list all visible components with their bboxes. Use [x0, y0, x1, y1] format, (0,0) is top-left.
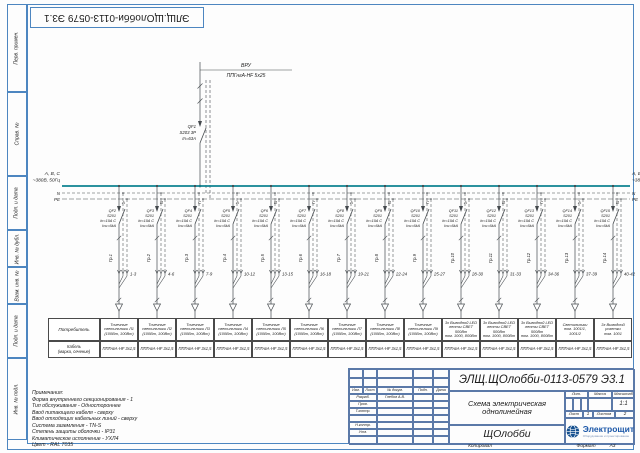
group-label: Гр.5 [260, 253, 265, 262]
table-cell-line: ППГнгА-HF 3х1,5 [217, 347, 250, 352]
cable-terminal [268, 304, 275, 311]
feeder-breaker-label: In=10A C [404, 219, 420, 223]
wire-numbers: 16-18 [320, 272, 332, 277]
feeder-breaker-label: QF2 [109, 209, 117, 213]
table-cell-line: (100Вт, 100Вт) [408, 332, 437, 336]
cable-cell-9: ППГнгА-HF 3х1,5 [404, 341, 442, 358]
table-cell-line: (100Вт, 100Вт) [256, 332, 285, 336]
table-cell-line: (100Вт, 100Вт) [332, 332, 361, 336]
cable-terminal [572, 304, 579, 311]
feeder-breaker-label: In=10A C [442, 219, 458, 223]
consumer-cell-11: 3х Выводной LEDленты СВЕТ 500Втпом. 1000… [480, 318, 518, 341]
group-label: Гр.4 [222, 253, 227, 262]
table-cell-line: пом. 1000, 800Вт [445, 334, 477, 338]
feeder-breaker-label: Icu=6kA [330, 224, 344, 228]
stamp-header-3: Подп. [413, 387, 433, 394]
feeder-breaker-label: Icu=6kA [216, 224, 230, 228]
stamp-lit-cell-1 [565, 398, 573, 411]
feeder-breaker-label: In=10A C [214, 219, 230, 223]
breaker-arrow [198, 121, 202, 127]
schematic-label: PE [54, 197, 61, 202]
feeder-arrow [421, 206, 425, 212]
table-cell-line: (100Вт, 100Вт) [104, 332, 133, 336]
feeder-breaker-label: In=10A C [252, 219, 268, 223]
margin-cell-label: Подп. и дата [14, 315, 20, 346]
schematic-label: ВРУ [241, 63, 252, 69]
feeder-arrow [383, 206, 387, 212]
feeder-breaker-label: QF15 [601, 209, 611, 213]
cable-cell-13: ППГнгА-HF 3х1,5 [556, 341, 594, 358]
feeder-breaker-label: QF13 [525, 209, 535, 213]
cable-terminal [420, 304, 427, 311]
table-cell-line: ППГнгА-HF 3х1,5 [369, 347, 402, 352]
consumer-cell-2: Точечныесветильники Л2(100Вт, 100Вт) [138, 318, 176, 341]
stamp-row-label-3 [349, 415, 377, 422]
consumer-cell-8: Точечныесветильники Л8(100Вт, 100Вт) [366, 318, 404, 341]
consumer-cell-6: Точечныесветильники Л6(100Вт, 100Вт) [290, 318, 328, 341]
table-cell-line: ППГнгА-HF 3х1,5 [521, 347, 554, 352]
feeder-arrow [269, 206, 273, 212]
wire-numbers: 22-24 [395, 272, 408, 277]
feeder-breaker-label: In=10A C [100, 219, 116, 223]
phase-letter: C [312, 200, 316, 205]
schematic-label: PE [632, 197, 639, 202]
feeder-breaker-label: QF10 [411, 209, 421, 213]
group-label: Гр.12 [526, 252, 531, 263]
feeder-breaker-label: S201 [107, 214, 116, 218]
schematic-label: ~380В, 50Гц [33, 178, 61, 184]
row1-header: Потребитель [48, 318, 100, 341]
consumer-cell-12: 3х Выводной LEDленты СВЕТ 500Втпом. 1000… [518, 318, 556, 341]
feeder-arrow [193, 206, 197, 212]
stamp-row-sign-5 [413, 429, 433, 436]
group-label: Гр.14 [602, 252, 607, 263]
consumer-cell-14: 3х Выводнойрозеткипом. 1001 [594, 318, 632, 341]
stamp-row-name-3 [377, 415, 413, 422]
schematic-shape [423, 209, 429, 224]
cable-cell-7: ППГнгА-HF 3х1,5 [328, 341, 366, 358]
cable-cell-10: ППГнгА-HF 3х1,5 [442, 341, 480, 358]
stamp-row-date-5 [433, 429, 449, 436]
table-cell-line: (100Вт, 100Вт) [180, 332, 209, 336]
consumer-cell-7: Точечныесветильники Л7(100Вт, 100Вт) [328, 318, 366, 341]
feeder-breaker-label: QF4 [185, 209, 192, 213]
schematic-label: A, B, C [44, 171, 61, 177]
feeder-breaker-label: QF3 [147, 209, 155, 213]
cable-terminal [496, 304, 503, 311]
stamp-change-cell [433, 378, 449, 387]
company-logo: Электрощит Оборудование и проектирование [565, 418, 635, 445]
wire-numbers: 1-3 [130, 272, 137, 277]
schematic-label: N [632, 191, 636, 196]
stamp-lit-cell-3 [581, 398, 588, 411]
table-cell-line: 1001/2 [569, 332, 581, 336]
margin-cell-label: Инв. № подл. [14, 383, 20, 414]
stamp-sheets-value: 2 [615, 411, 635, 418]
feeder-breaker-label: Icu=6kA [406, 224, 420, 228]
feeder-breaker-label: S201 [335, 214, 344, 218]
cable-terminal [116, 304, 123, 311]
stamp-lit-cell-2 [573, 398, 581, 411]
stamp-row-name-4 [377, 422, 413, 429]
feeder-breaker-label: QF7 [299, 209, 307, 213]
margin-cell-6: Инв. № подл. [7, 358, 27, 440]
feeder-breaker-label: Icu=6kA [254, 224, 268, 228]
stamp-row-label-0: Разраб. [349, 394, 377, 401]
cable-cell-2: ППГнгА-HF 3х1,5 [138, 341, 176, 358]
note-line: Ввод отходящих кабельных линий - сверху [32, 416, 137, 423]
table-cell-line: ППГнгА-HF 3х1,5 [179, 347, 212, 352]
stamp-row-date-4 [433, 422, 449, 429]
stamp-header-1: Лист [363, 387, 377, 394]
feeder-breaker-label: In=10A C [290, 219, 306, 223]
group-label: Гр.10 [450, 252, 455, 263]
consumers-table: ПотребительКабель(марка, сечение)Точечны… [48, 318, 632, 358]
stamp-row-date-0 [433, 394, 449, 401]
wire-numbers: 25-27 [433, 272, 446, 277]
stamp-row-label-2: Т.контр. [349, 408, 377, 415]
cable-terminal [458, 304, 465, 311]
table-cell-line: ППГнгА-HF 3х1,5 [407, 347, 440, 352]
stamp-sheet-label: Лист [565, 411, 583, 418]
cable-terminal [192, 304, 199, 311]
feeder-breaker-label: QF8 [337, 209, 345, 213]
wire-numbers: 10-12 [244, 272, 256, 277]
cable-cell-6: ППГнгА-HF 3х1,5 [290, 341, 328, 358]
cable-terminal [534, 304, 541, 311]
feeder-breaker-label: S201 [411, 214, 420, 218]
group-label: Гр.1 [108, 254, 113, 262]
consumer-cell-4: Точечныесветильники Л4(100Вт, 100Вт) [214, 318, 252, 341]
cable-terminal [610, 304, 617, 311]
group-label: Гр.2 [146, 253, 151, 262]
feeder-breaker-label: QF5 [223, 209, 231, 213]
phase-letter: C [198, 200, 202, 205]
stamp-row-name-2 [377, 408, 413, 415]
cable-cell-11: ППГнгА-HF 3х1,5 [480, 341, 518, 358]
group-label: Гр.8 [374, 253, 379, 262]
stamp-doc-number: ЭЛЩ.ЩОлобби-0113-0579 Э3.1 [449, 369, 635, 391]
title-block: ЭЛЩ.ЩОлобби-0113-0579 Э3.1 Схема электри… [348, 368, 634, 444]
consumer-cell-13: Светильникипом. 1001/1,1001/2 [556, 318, 594, 341]
feeder-arrow [535, 206, 539, 212]
schematic-shape [157, 209, 163, 224]
cable-cell-4: ППГнгА-HF 3х1,5 [214, 341, 252, 358]
consumer-cell-3: Точечныесветильники Л3(100Вт, 100Вт) [176, 318, 214, 341]
stamp-sheet-value: 1 [583, 411, 593, 418]
phase-letter: B [616, 200, 619, 205]
phase-letter: B [274, 200, 277, 205]
group-label: Гр.3 [184, 253, 189, 262]
feeder-breaker-label: S201 [221, 214, 230, 218]
feeder-breaker-label: S201 [259, 214, 268, 218]
schematic-shape [200, 128, 206, 143]
cable-cell-3: ППГнгА-HF 3х1,5 [176, 341, 214, 358]
schematic-shape [233, 209, 239, 224]
feeder-arrow [573, 206, 577, 212]
feeder-breaker-label: In=10A C [480, 219, 496, 223]
stamp-change-cell [433, 369, 449, 378]
feeder-arrow [231, 206, 235, 212]
feeder-breaker-label: S201 [487, 214, 496, 218]
table-cell-line: ППГнгА-HF 3х1,5 [103, 347, 136, 352]
cable-cell-5: ППГнгА-HF 3х1,5 [252, 341, 290, 358]
stamp-change-cell [413, 369, 433, 378]
stamp-row-label-5: Утв. [349, 429, 377, 436]
table-cell-line: ППГнгА-HF 3х1,5 [483, 347, 516, 352]
phase-letter: C [426, 200, 430, 205]
feeder-breaker-label: S201 [449, 214, 458, 218]
schematic-shape [195, 209, 201, 224]
table-cell-line: ППГнгА-HF 3х1,5 [293, 347, 326, 352]
schematic-label: N [57, 191, 61, 196]
stamp-scale-label: Масштаб [612, 391, 635, 398]
stamp-header-2: № докум. [377, 387, 413, 394]
incoming-breaker-label: QF1 [188, 124, 197, 129]
wire-numbers: 31-33 [510, 272, 522, 277]
stamp-row-date-3 [433, 415, 449, 422]
schematic-shape [461, 209, 467, 224]
group-label: Гр.11 [488, 253, 493, 263]
schematic-shape [271, 209, 277, 224]
stamp-row-sign-1 [413, 401, 433, 408]
stamp-change-cell [363, 369, 377, 378]
cable-cell-12: ППГнгА-HF 3х1,5 [518, 341, 556, 358]
table-cell-line: (100Вт, 100Вт) [142, 332, 171, 336]
stamp-change-cell [413, 378, 433, 387]
feeder-breaker-label: Icu=6kA [140, 224, 154, 228]
stamp-change-cell [349, 369, 363, 378]
group-label: Гр.7 [336, 253, 341, 262]
feeder-breaker-label: S201 [601, 214, 610, 218]
stamp-header-4: Дата [433, 387, 449, 394]
feeder-breaker-label: S201 [373, 214, 382, 218]
table-cell-line: ППГнгА-HF 3х1,5 [445, 347, 478, 352]
stamp-scale-value: 1:1 [612, 398, 635, 411]
feeder-arrow [459, 206, 463, 212]
incoming-breaker-label: S203 3P [180, 130, 197, 135]
feeder-breaker-label: QF12 [487, 209, 497, 213]
logo-text: Электрощит [583, 425, 634, 434]
schematic-label: A, B, C [631, 171, 640, 177]
wire-numbers: 40-42 [624, 272, 636, 277]
consumer-cell-10: 3х Выводной LEDленты СВЕТ 500Втпом. 1000… [442, 318, 480, 341]
feeder-arrow [345, 206, 349, 212]
stamp-row-date-1 [433, 401, 449, 408]
copied-label: Копировал [400, 444, 560, 449]
stamp-row-name-0: Глебов А.В. [377, 394, 413, 401]
stamp-header-0: Изм. [349, 387, 363, 394]
table-cell-line: (100Вт, 100Вт) [294, 332, 323, 336]
phase-letter: B [502, 200, 505, 205]
feeder-breaker-label: Icu=6kA [368, 224, 382, 228]
stamp-change-cell [377, 369, 413, 378]
feeder-breaker-label: In=10A C [366, 219, 382, 223]
schematic-shape [347, 209, 353, 224]
table-cell-line: ППГнгА-HF 3х1,5 [331, 347, 364, 352]
feeder-breaker-label: S201 [297, 214, 306, 218]
table-cell-line: (100Вт, 100Вт) [370, 332, 399, 336]
stamp-change-cell [349, 378, 363, 387]
group-label: Гр.13 [564, 252, 569, 263]
notes-lines: Форма внутреннего секционирования - 1Тип… [32, 397, 137, 449]
feeder-breaker-label: In=10A C [594, 219, 610, 223]
stamp-row-name-1 [377, 401, 413, 408]
feeder-breaker-label: S201 [183, 214, 192, 218]
schematic-shape [499, 209, 505, 224]
stamp-change-cell [377, 378, 413, 387]
stamp-lit-label: Лит. [565, 391, 588, 398]
schematic-shape [613, 209, 619, 224]
feeder-arrow [611, 206, 615, 212]
wire-numbers: 7-9 [206, 272, 213, 277]
feeder-breaker-label: Icu=6kA [482, 224, 496, 228]
schematic-shape [385, 209, 391, 224]
table-cell-line: пом. 1000, 800Вт [521, 334, 553, 338]
feeder-arrow [307, 206, 311, 212]
stamp-bottom-1 [349, 436, 377, 445]
feeder-breaker-label: In=10A C [138, 219, 154, 223]
globe-icon [566, 424, 580, 439]
feeder-breaker-label: Icu=6kA [596, 224, 610, 228]
phase-letter: B [388, 200, 391, 205]
schematic-shape [537, 209, 543, 224]
feeder-breaker-label: QF14 [563, 209, 573, 213]
stamp-row-sign-0 [413, 394, 433, 401]
table-cell-line: Потребитель [58, 327, 89, 332]
stamp-object-name: ЩОлобби [449, 425, 565, 445]
schematic-shape [309, 209, 315, 224]
feeder-breaker-label: In=10A C [176, 219, 192, 223]
consumer-cell-1: Точечныесветильники Л1(100Вт, 100Вт) [100, 318, 138, 341]
stamp-row-label-4: Н.контр. [349, 422, 377, 429]
feeder-breaker-label: Icu=6kA [178, 224, 192, 228]
row2-header: Кабель(марка, сечение) [48, 341, 100, 358]
stamp-mass-label: Масса [588, 391, 612, 398]
stamp-sheets-label: Листов [593, 411, 615, 418]
cable-cell-14: ППГнгА-HF 3х1,5 [594, 341, 632, 358]
group-label: Гр.9 [412, 253, 417, 262]
cable-cell-8: ППГнгА-HF 3х1,5 [366, 341, 404, 358]
stamp-row-name-5 [377, 429, 413, 436]
feeder-breaker-label: S201 [145, 214, 154, 218]
note-line: Цвет - RAL 7035 [32, 442, 137, 449]
feeder-breaker-label: Icu=6kA [292, 224, 306, 228]
feeder-breaker-label: Icu=6kA [444, 224, 458, 228]
feeder-breaker-label: Icu=6kA [102, 224, 116, 228]
feeder-breaker-label: Icu=6kA [558, 224, 572, 228]
cable-terminal [306, 304, 313, 311]
stamp-row-sign-4 [413, 422, 433, 429]
feeder-breaker-label: QF9 [375, 209, 383, 213]
phase-letter: B [160, 200, 163, 205]
feeder-arrow [497, 206, 501, 212]
logo-tagline: Оборудование и проектирование [583, 434, 629, 438]
feeder-breaker-label: QF6 [261, 209, 269, 213]
table-cell-line: ППГнгА-HF 3х1,5 [141, 347, 174, 352]
wire-numbers: 4-6 [168, 272, 175, 277]
stamp-row-sign-3 [413, 415, 433, 422]
incoming-breaker-label: In=63A [182, 136, 196, 141]
wire-numbers: 13-15 [282, 272, 294, 277]
feeder-breaker-label: Icu=6kA [520, 224, 534, 228]
table-cell-line: (марка, сечение) [58, 350, 91, 355]
wire-numbers: 34-36 [548, 272, 560, 277]
feeder-breaker-label: QF11 [449, 209, 458, 213]
phase-letter: C [540, 200, 544, 205]
format-label: Формат А3 [556, 444, 636, 449]
consumer-cell-5: Точечныесветильники Л5(100Вт, 100Вт) [252, 318, 290, 341]
stamp-title: Схема электрическая однолинейная [449, 391, 565, 425]
stamp-row-date-2 [433, 408, 449, 415]
schematic-shape [575, 209, 581, 224]
schematic-label: ППГнгА-HF 5х25 [227, 73, 266, 79]
notes-block: Примечания: Форма внутреннего секциониро… [32, 390, 137, 449]
table-cell-line: (100Вт, 100Вт) [218, 332, 247, 336]
consumer-cell-9: Точечныесветильники Л9(100Вт, 100Вт) [404, 318, 442, 341]
wire-numbers: 19-21 [358, 272, 370, 277]
schematic-shape [119, 209, 125, 224]
cable-terminal [230, 304, 237, 311]
feeder-breaker-label: In=10A C [328, 219, 344, 223]
wire-numbers: 28-30 [471, 272, 484, 277]
table-cell-line: ППГнгА-HF 3х1,5 [255, 347, 288, 352]
wire-numbers: 37-39 [586, 272, 598, 277]
drawing-sheet: Перв. примен.Справ. №Подп. и датаИнв. № … [0, 0, 640, 453]
feeder-breaker-label: S201 [563, 214, 572, 218]
cable-terminal [382, 304, 389, 311]
table-cell-line: ППГнгА-HF 3х1,5 [597, 347, 630, 352]
table-cell-line: пом. 1000, 800Вт [483, 334, 515, 338]
stamp-row-label-1: Пров. [349, 401, 377, 408]
stamp-row-sign-2 [413, 408, 433, 415]
table-cell-line: ППГнгА-HF 3х1,5 [559, 347, 592, 352]
stamp-mass-value [588, 398, 612, 411]
group-label: Гр.6 [298, 253, 303, 262]
cable-terminal [344, 304, 351, 311]
cable-cell-1: ППГнгА-HF 3х1,5 [100, 341, 138, 358]
feeder-breaker-label: In=10A C [556, 219, 572, 223]
feeder-breaker-label: S201 [525, 214, 534, 218]
stamp-change-cell [363, 378, 377, 387]
feeder-arrow [117, 206, 121, 212]
single-line-schematic: ВРУППГнгА-HF 5х25QF1S203 3PIn=63AA, B, C… [0, 0, 640, 318]
feeder-arrow [155, 206, 159, 212]
cable-terminal [154, 304, 161, 311]
schematic-label: ~380В, 50Гц [632, 178, 640, 184]
table-cell-line: пом. 1001 [604, 332, 622, 336]
feeder-breaker-label: In=10A C [518, 219, 534, 223]
